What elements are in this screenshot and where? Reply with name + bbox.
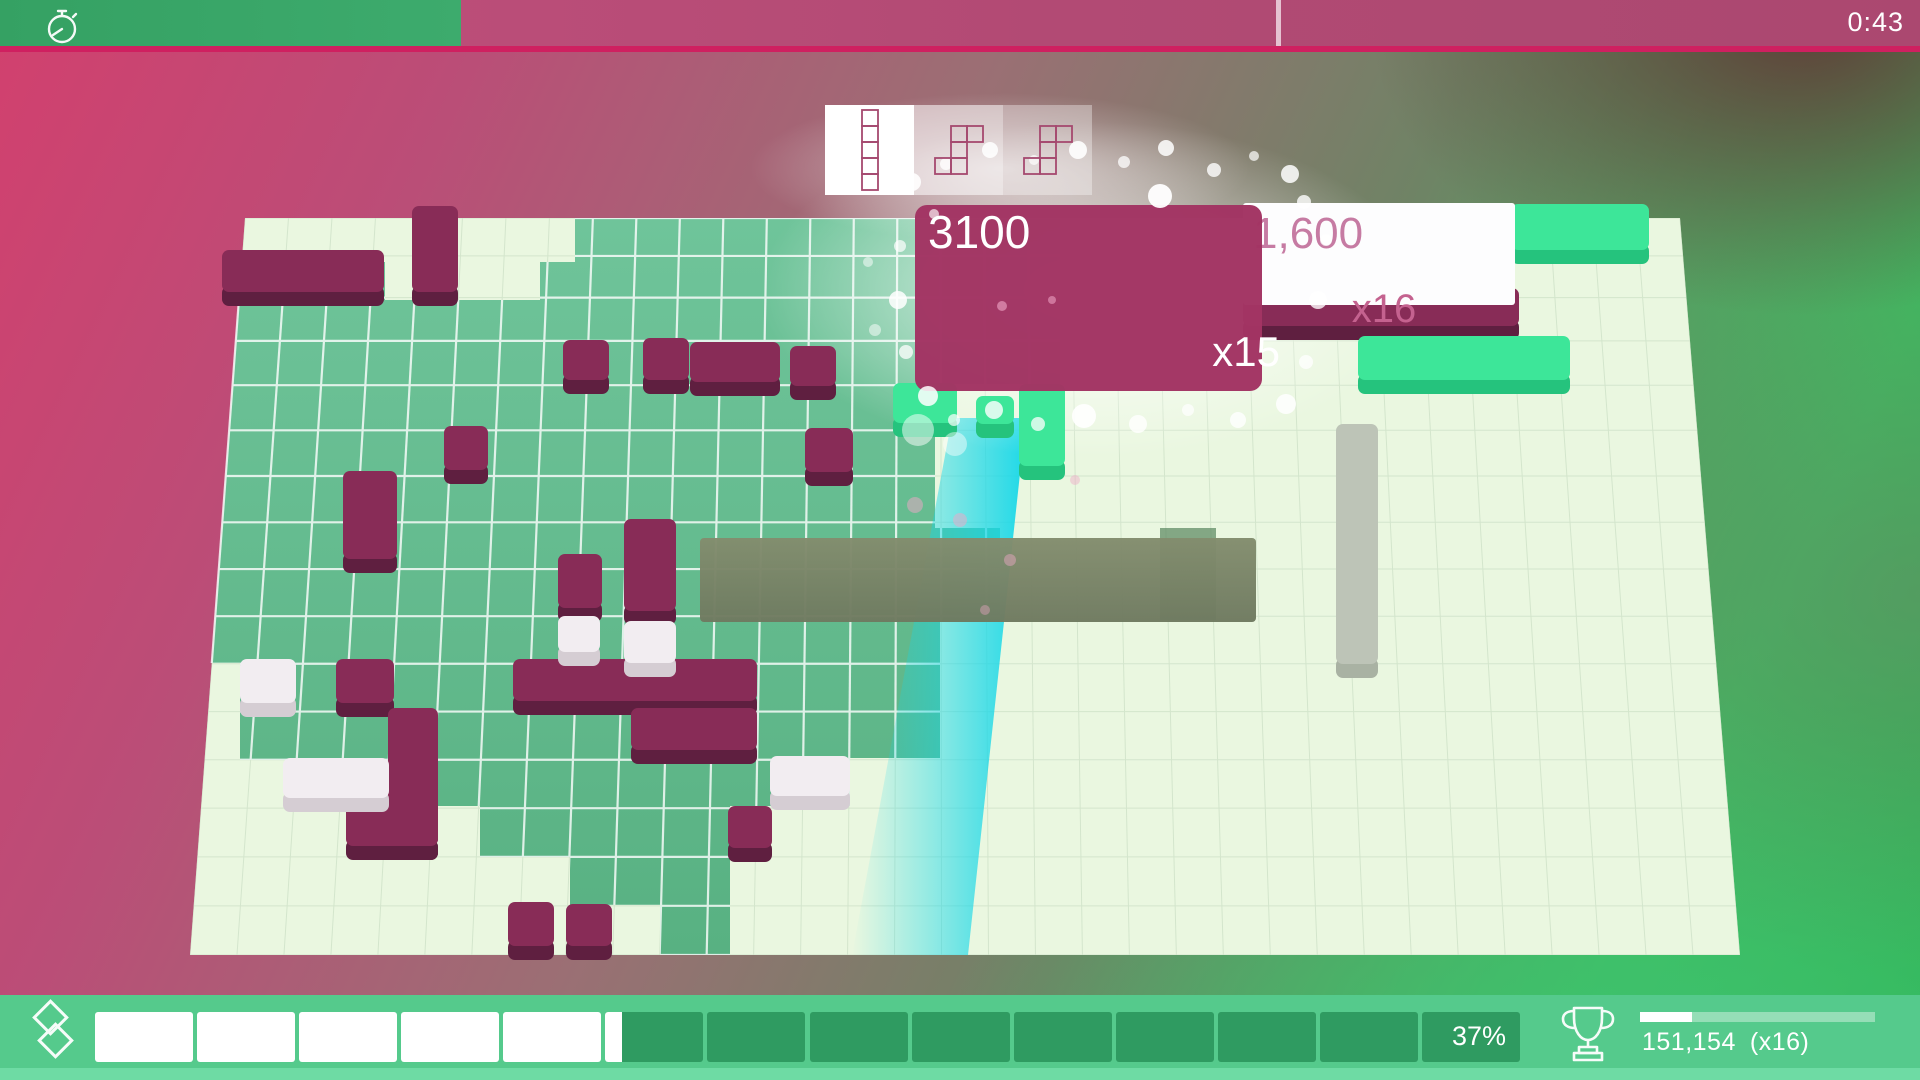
progress-segment bbox=[1014, 1012, 1112, 1062]
olive-bar-block bbox=[700, 538, 1256, 622]
game-screen: 1,6003100x15x16 0:43 37% bbox=[0, 0, 1920, 1080]
piece-s5-icon bbox=[1022, 124, 1074, 176]
block-m bbox=[690, 342, 780, 396]
piece-i5-icon bbox=[860, 108, 880, 192]
block-w bbox=[770, 756, 850, 810]
progress-segment bbox=[401, 1012, 499, 1062]
time-bar-marker bbox=[1276, 0, 1281, 46]
progress-segment bbox=[197, 1012, 295, 1062]
block-m bbox=[558, 554, 602, 622]
block-s bbox=[1336, 424, 1378, 678]
piece-queue-slot-1[interactable] bbox=[825, 105, 914, 195]
block-m bbox=[508, 902, 554, 960]
block-m bbox=[566, 904, 612, 960]
block-m bbox=[643, 338, 689, 394]
progress-segment bbox=[95, 1012, 193, 1062]
block-g bbox=[1019, 384, 1065, 480]
score-multiplier-bar bbox=[1640, 1012, 1875, 1022]
score-display: 151,154(x16) bbox=[1642, 1028, 1809, 1057]
popup-multiplier-2: x16 bbox=[1352, 287, 1417, 331]
block-m bbox=[222, 250, 384, 306]
block-m bbox=[563, 340, 609, 394]
progress-segment bbox=[810, 1012, 908, 1062]
block-w bbox=[283, 758, 389, 812]
block-m bbox=[790, 346, 836, 400]
block-m bbox=[412, 206, 458, 306]
block-g bbox=[1358, 336, 1570, 394]
progress-segment bbox=[912, 1012, 1010, 1062]
level-progress-bar: 37% bbox=[95, 1012, 1520, 1062]
block-m bbox=[624, 519, 676, 625]
block-m bbox=[336, 659, 394, 717]
bottom-strip bbox=[0, 1068, 1920, 1080]
blocks-icon bbox=[22, 998, 82, 1068]
block-w bbox=[558, 616, 600, 666]
score-value: 151,154 bbox=[1642, 1028, 1736, 1056]
piece-s5-icon bbox=[933, 124, 985, 176]
bottom-hud: 37% 151,154(x16) bbox=[0, 995, 1920, 1080]
trophy-icon bbox=[1560, 1003, 1616, 1065]
stopwatch-icon bbox=[42, 6, 82, 46]
score-multiplier-bar-fill bbox=[1640, 1012, 1692, 1022]
progress-segment bbox=[299, 1012, 397, 1062]
time-bar: 0:43 bbox=[0, 0, 1920, 52]
block-w bbox=[240, 659, 296, 717]
block-m bbox=[346, 804, 438, 860]
block-m bbox=[343, 471, 397, 573]
block-w bbox=[624, 621, 676, 677]
progress-segment bbox=[1116, 1012, 1214, 1062]
level-progress-percent: 37% bbox=[1452, 1021, 1506, 1052]
score-multiplier: (x16) bbox=[1750, 1028, 1809, 1056]
progress-segment bbox=[1218, 1012, 1316, 1062]
progress-segment bbox=[707, 1012, 805, 1062]
block-m bbox=[728, 806, 772, 862]
progress-segment bbox=[1320, 1012, 1418, 1062]
piece-queue-slot-2[interactable] bbox=[914, 105, 1003, 195]
block-m bbox=[805, 428, 853, 486]
piece-queue bbox=[825, 105, 1092, 195]
block-g bbox=[1511, 204, 1649, 264]
block-m bbox=[631, 708, 757, 764]
board-root: 1,6003100x15x16 bbox=[190, 93, 1740, 960]
popup-points-1: 3100 bbox=[928, 206, 1030, 258]
time-remaining: 0:43 bbox=[1847, 7, 1904, 38]
block-m bbox=[444, 426, 488, 484]
popup-points-2: 1,600 bbox=[1253, 209, 1363, 258]
piece-queue-slot-3[interactable] bbox=[1003, 105, 1092, 195]
popup-multiplier-1: x15 bbox=[1212, 328, 1280, 375]
progress-segment bbox=[503, 1012, 601, 1062]
progress-segment bbox=[605, 1012, 703, 1062]
